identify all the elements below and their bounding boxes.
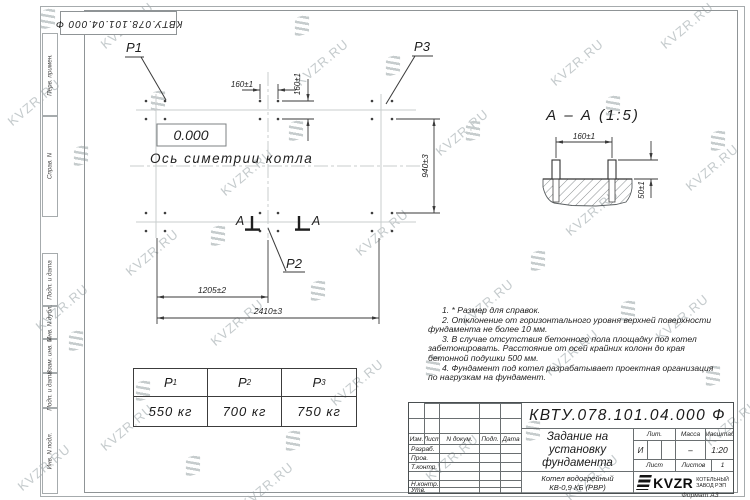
tb-value-lit: И [633,440,647,459]
load-table-header-p1: P1 [134,369,208,397]
tb-header-podp: Подп. [479,433,500,444]
elevation-text: 0.000 [173,127,208,143]
section-foundation [543,160,632,206]
load-table-value-p2: 700 кг [208,397,282,426]
tb-row-tkontr: Т.контр. [409,462,439,471]
tb-drawing-title: Задание на установку фундамента [521,428,633,471]
load-table: P1 P2 P3 550 кг 700 кг 750 кг [133,368,357,427]
tb-header-list: Лист [424,433,439,444]
boiler-axis-label: Ось симетрии котла [150,151,313,166]
load-table-value-p1: 550 кг [134,397,208,426]
dim-160-side-text: 160±1 [293,73,302,95]
title-block: Изм. Лист N докум. Подп. Дата Разраб. Пр… [408,402,734,494]
load-table-header-p3: P3 [282,369,356,397]
tb-header-lit: Лит. [633,428,675,440]
tb-header-doc: N докум. [439,433,479,444]
tb-value-sheets-count: 1 [711,459,733,471]
section-letter-right: А [311,214,320,228]
tb-row-prov: Пров. [409,453,439,462]
tb-value-massa: – [675,440,705,459]
tb-doc-number: КВТУ.078.101.04.000 Ф [521,403,733,428]
note-2: 2. Отклонение от горизонтального уровня … [428,316,722,335]
tb-row-utv: Утв. [409,487,439,493]
tb-header-data: Дата [500,433,521,444]
tb-header-massa: Масса [675,428,705,440]
sheet-format-label: Формат А3 [660,492,740,499]
section-dim-160-text: 160±1 [573,132,595,141]
dim-2410-text: 2410±3 [253,306,283,316]
tb-header-masshtab: Масштаб [705,428,733,440]
load-table-value-p3: 750 кг [282,397,356,426]
note-4: 4. Фундамент под котел разрабатывает про… [428,364,722,383]
tb-logo-cell: KVZR КОТЕЛЬНЫЙЗАВОД РЭП [633,471,733,493]
section-cut-marks [245,216,310,230]
load-table-header-p2: P2 [208,369,282,397]
load-point-p3-label: P3 [414,39,431,54]
dim-1205-text: 1205±2 [198,285,227,295]
tb-product: Котел водогрейныйКВ-0,9 КБ (РВР) [521,471,633,493]
tb-header-sheet: Лист [633,459,675,471]
tb-value-scale: 1:20 [705,440,733,459]
tb-header-sheets: Листов [675,459,711,471]
section-dim-50-text: 50±1 [637,181,646,199]
kvzr-logo-text: KVZR [653,475,693,491]
dim-160-top-text: 160±1 [231,80,253,89]
load-point-p2-label: P2 [286,256,303,271]
tb-row-razrab: Разраб. [409,444,439,453]
section-view-title: А – А (1:5) [545,107,640,124]
kvzr-logo-icon [636,475,652,490]
load-point-p1-label: P1 [126,40,142,55]
rotated-docnumber-text: КВТУ.078.101.04.000 Ф [55,18,183,29]
rotated-docnumber-stamp: КВТУ.078.101.04.000 Ф [60,11,177,35]
dim-940-text: 940±3 [420,154,430,178]
tb-row-nkontr: Н.контр. [409,480,439,487]
kvzr-logo-caption: КОТЕЛЬНЫЙЗАВОД РЭП [696,477,729,489]
drawing-sheet: KVZR.RU KVZR.RU KVZR.RU KVZR.RU KVZR.RU … [0,0,750,500]
tb-row-empty [409,471,439,480]
tb-header-izm: Изм. [409,433,424,444]
technical-notes: 1. * Размер для справок. 2. Отклонение о… [428,306,722,383]
section-letter-left: А [235,214,244,228]
note-3: 3. В случае отсутствия бетонного пола пл… [428,335,722,364]
